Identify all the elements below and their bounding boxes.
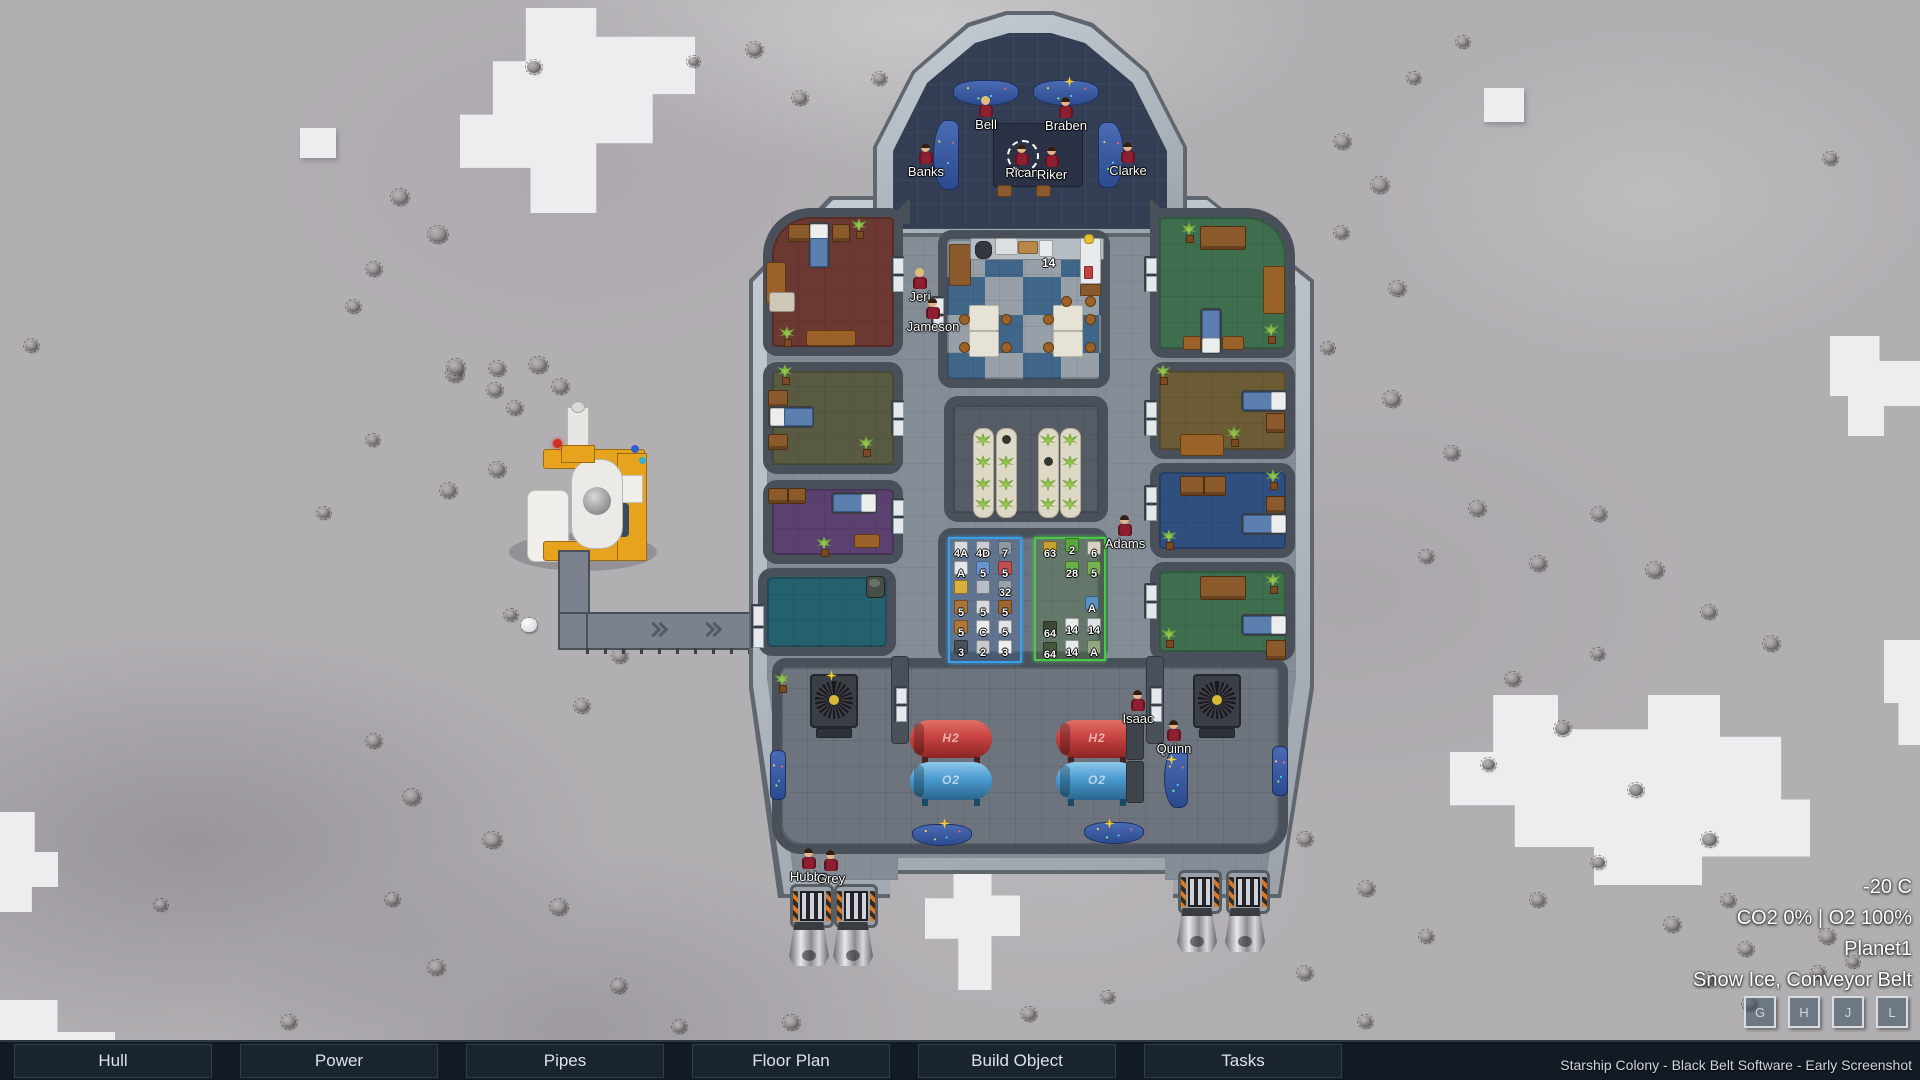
dining-table[interactable] (969, 331, 999, 357)
plant-pot (782, 377, 790, 385)
rig-tower-base (561, 445, 595, 463)
rock[interactable] (1372, 178, 1388, 192)
hotkey-j-button[interactable]: J (1832, 996, 1864, 1028)
snow-patch (300, 128, 336, 158)
plant-leaves-icon (858, 436, 874, 450)
dresser[interactable] (788, 488, 806, 504)
crew-hair (1061, 97, 1070, 102)
door-panel (893, 402, 904, 418)
plant[interactable] (1263, 323, 1279, 343)
crew-member-clarke[interactable]: Clarke (1120, 142, 1136, 164)
stored-item[interactable]: 64 (1040, 642, 1060, 662)
rock[interactable] (1702, 833, 1717, 846)
stored-item-count: 5 (980, 568, 986, 580)
furniture[interactable] (1084, 266, 1093, 279)
hull-button[interactable]: Hull (14, 1044, 212, 1078)
stored-item-count: A (1088, 603, 1096, 615)
console[interactable] (1084, 822, 1144, 844)
door[interactable] (891, 256, 904, 292)
stool[interactable] (1043, 314, 1054, 325)
dining-table[interactable] (1053, 305, 1083, 331)
furniture[interactable] (1084, 234, 1094, 244)
rig-box (621, 475, 643, 503)
rock[interactable] (429, 961, 444, 974)
stored-item[interactable]: 64 (1040, 621, 1060, 641)
furniture[interactable] (1199, 728, 1235, 738)
stool[interactable] (1061, 296, 1072, 307)
rock[interactable] (793, 92, 807, 104)
stored-item[interactable]: A (1084, 640, 1104, 660)
table[interactable] (1180, 434, 1224, 456)
tasks-button[interactable]: Tasks (1144, 1044, 1342, 1078)
rock[interactable] (404, 790, 420, 804)
console[interactable] (912, 824, 972, 846)
dresser[interactable] (1266, 496, 1285, 514)
stored-item[interactable]: 5 (951, 620, 971, 640)
stored-item[interactable]: 5 (995, 620, 1015, 640)
stored-item-count: A (957, 568, 965, 580)
rock[interactable] (1629, 784, 1643, 796)
table[interactable] (806, 330, 856, 346)
dresser[interactable] (1180, 476, 1204, 496)
plant-pot (821, 549, 829, 557)
build-object-button[interactable]: Build Object (918, 1044, 1116, 1078)
table[interactable] (854, 534, 880, 548)
stored-item[interactable]: 2 (973, 640, 993, 660)
plant[interactable] (777, 364, 793, 384)
crew-hair (915, 268, 924, 273)
crew-member-hubba[interactable]: Hubba (801, 848, 817, 870)
door[interactable] (1144, 583, 1157, 619)
stool[interactable] (959, 314, 970, 325)
rock[interactable] (1022, 1008, 1036, 1020)
rock[interactable] (1824, 153, 1837, 164)
stool[interactable] (1001, 342, 1012, 353)
rock[interactable] (367, 263, 381, 275)
stored-item-count: 5 (1002, 568, 1008, 580)
plant-leaves-icon (777, 364, 793, 378)
door-panel (893, 420, 904, 436)
plant-leaves-icon (816, 536, 832, 550)
door-panel (1146, 585, 1157, 601)
environment-hud: -20 C CO2 0% | O2 100% Planet1 Snow Ice,… (1693, 872, 1912, 996)
rock[interactable] (1764, 637, 1779, 650)
furniture[interactable] (1036, 185, 1051, 197)
stored-item-count: C (979, 627, 987, 639)
rock[interactable] (392, 190, 408, 204)
plant-leaves-icon (1263, 323, 1279, 337)
rock[interactable] (1531, 557, 1546, 570)
stored-item[interactable] (973, 580, 993, 600)
dresser[interactable] (1266, 640, 1286, 660)
dresser[interactable] (788, 224, 810, 242)
ventilation-fan[interactable] (810, 674, 858, 728)
furniture[interactable] (995, 238, 1018, 255)
crew-member-grey[interactable]: Grey (823, 850, 839, 872)
stored-item-count: 7 (1002, 548, 1008, 560)
bed[interactable] (1241, 614, 1287, 636)
door-panel (753, 628, 764, 648)
bed-blanket (1243, 616, 1272, 634)
stored-item[interactable] (951, 580, 971, 600)
door-panel (1146, 603, 1157, 619)
watermark-caption: Starship Colony - Black Belt Software - … (1560, 1057, 1912, 1073)
rock[interactable] (551, 900, 567, 914)
rig-blue-light (631, 445, 639, 453)
engine-housing[interactable] (1226, 870, 1270, 914)
crew-name-label: Rican (1005, 165, 1038, 180)
bed[interactable] (768, 406, 814, 428)
door[interactable] (891, 400, 904, 436)
rig-red-light (553, 439, 562, 448)
plant[interactable] (1265, 573, 1281, 593)
plant-pot (1270, 482, 1278, 490)
rock[interactable] (1359, 882, 1374, 895)
stored-item[interactable]: 4D (973, 541, 993, 561)
hotkey-h-button[interactable]: H (1788, 996, 1820, 1028)
plant[interactable] (1265, 469, 1281, 489)
bed-pillow (861, 494, 876, 512)
table[interactable] (1183, 336, 1201, 350)
trough-hole (1044, 457, 1053, 466)
plant-leaves-icon (1226, 426, 1242, 440)
door[interactable] (1144, 256, 1157, 292)
rock[interactable] (575, 700, 589, 712)
plant[interactable] (1181, 222, 1197, 242)
crew-hair (1123, 142, 1132, 147)
engine-nozzle (1177, 908, 1217, 952)
bed[interactable] (808, 222, 830, 268)
rock[interactable] (367, 735, 381, 747)
plant[interactable] (1226, 426, 1242, 446)
stored-item[interactable]: A (1082, 596, 1102, 616)
stored-item[interactable]: A (951, 561, 971, 581)
rock[interactable] (282, 1016, 296, 1028)
bed-blanket (784, 408, 813, 426)
rock[interactable] (784, 1016, 799, 1029)
console[interactable] (933, 120, 959, 190)
stored-item[interactable]: 3 (995, 640, 1015, 660)
engine-housing[interactable] (790, 884, 834, 928)
power-button[interactable]: Power (240, 1044, 438, 1078)
stored-item[interactable]: 5 (995, 600, 1015, 620)
plant-pot (1166, 542, 1174, 550)
crew-body (1121, 151, 1135, 163)
rock[interactable] (1702, 606, 1716, 618)
bed[interactable] (831, 492, 877, 514)
crew-name-label: Adams (1105, 536, 1145, 551)
crew-body (1059, 106, 1073, 118)
rock[interactable] (553, 380, 568, 393)
rock[interactable] (1384, 392, 1400, 406)
stored-item[interactable]: 3 (951, 640, 971, 660)
rock[interactable] (1482, 759, 1495, 770)
hydroponics-trough[interactable] (1060, 428, 1081, 518)
rock[interactable] (1445, 447, 1459, 459)
stored-item[interactable]: 14 (1084, 618, 1104, 638)
door[interactable] (894, 686, 907, 722)
rock[interactable] (1298, 833, 1312, 845)
table[interactable] (1263, 266, 1285, 314)
plant[interactable] (1161, 529, 1177, 549)
rock[interactable] (1298, 967, 1312, 979)
crew-member-jameson[interactable]: Jameson (925, 298, 941, 320)
door[interactable] (1144, 400, 1157, 436)
plant[interactable] (816, 536, 832, 556)
rock[interactable] (347, 301, 360, 312)
dresser[interactable] (768, 434, 788, 450)
stored-item[interactable]: 7 (995, 541, 1015, 561)
pipes-button[interactable]: Pipes (466, 1044, 664, 1078)
furniture[interactable] (997, 185, 1012, 197)
door-panel (893, 258, 904, 274)
plant-leaves-icon (1155, 364, 1171, 378)
furniture[interactable] (975, 241, 992, 259)
stored-item[interactable]: 63 (1040, 541, 1060, 561)
rock[interactable] (441, 484, 456, 497)
stool[interactable] (1043, 342, 1054, 353)
rock[interactable] (25, 340, 38, 351)
dresser[interactable] (1204, 476, 1226, 496)
crew-member-bell[interactable]: Bell (978, 96, 994, 118)
bed-blanket (810, 238, 828, 267)
stored-item[interactable]: 5 (1084, 561, 1104, 581)
rock[interactable] (673, 1021, 686, 1032)
crew-body (919, 152, 933, 164)
rock[interactable] (1390, 282, 1405, 295)
plant-pot (856, 231, 864, 239)
rock[interactable] (1531, 894, 1545, 906)
furniture[interactable] (949, 244, 971, 286)
stored-item[interactable]: 5 (973, 561, 993, 581)
crew-member-jeri[interactable]: Jeri (912, 268, 928, 290)
console[interactable] (770, 750, 786, 800)
rock[interactable] (1335, 135, 1350, 148)
rock[interactable] (1592, 857, 1605, 868)
stool[interactable] (1085, 342, 1096, 353)
barrel-top (869, 579, 880, 587)
stored-item-count: 5 (1002, 607, 1008, 619)
door[interactable] (1144, 485, 1157, 521)
door[interactable] (751, 604, 764, 648)
engine-housing[interactable] (1178, 870, 1222, 914)
rock[interactable] (873, 73, 886, 84)
rock[interactable] (490, 463, 505, 476)
crew-member-riker[interactable]: Riker (1044, 146, 1060, 168)
crew-member-banks[interactable]: Banks (918, 143, 934, 165)
door-panel (896, 706, 907, 722)
hotkey-l-button[interactable]: L (1876, 996, 1908, 1028)
stored-item[interactable]: 28 (1062, 561, 1082, 581)
crew-body (1045, 155, 1059, 167)
bed-pillow (810, 224, 828, 239)
stored-item-count: 63 (1044, 548, 1056, 560)
bed[interactable] (1241, 513, 1287, 535)
crew-body (802, 857, 816, 869)
plant[interactable] (779, 326, 795, 346)
engine-housing[interactable] (834, 884, 878, 928)
stored-item-icon (976, 580, 990, 594)
stored-item[interactable]: 32 (995, 580, 1015, 600)
rock[interactable] (1420, 931, 1433, 942)
crew-hair (1017, 144, 1026, 149)
plant-leaves-icon (1161, 627, 1177, 641)
rock[interactable] (1470, 502, 1485, 515)
trough-plant (975, 477, 991, 491)
crew-name-label: Banks (908, 164, 944, 179)
stored-item-count: 14 (1066, 647, 1078, 659)
stored-item-count: 64 (1044, 628, 1056, 640)
mining-rig[interactable] (515, 405, 650, 565)
stored-item-count: 64 (1044, 649, 1056, 661)
stored-item-count: 5 (980, 607, 986, 619)
trough-hole (1002, 435, 1011, 444)
plant[interactable] (851, 218, 867, 238)
rock[interactable] (1335, 227, 1348, 238)
plant[interactable] (774, 672, 790, 692)
door-panel (753, 606, 764, 626)
stored-item-count: 2 (1069, 545, 1075, 557)
rock[interactable] (1592, 508, 1606, 520)
rock[interactable] (1506, 673, 1520, 685)
stored-item-count: 28 (1066, 568, 1078, 580)
rock[interactable] (1647, 563, 1663, 577)
furniture[interactable] (1126, 761, 1144, 803)
stored-item[interactable]: 2 (1062, 538, 1082, 558)
crew-name-label: Clarke (1109, 163, 1147, 178)
bed[interactable] (1241, 390, 1287, 412)
crew-member-braben[interactable]: Braben (1058, 97, 1074, 119)
crew-name-label: Bell (975, 117, 997, 132)
floor-plan-button[interactable]: Floor Plan (692, 1044, 890, 1078)
dresser[interactable] (1266, 413, 1285, 433)
hydroponics-trough[interactable] (1038, 428, 1059, 518)
stored-item[interactable]: 14 (1062, 618, 1082, 638)
stool[interactable] (1085, 314, 1096, 325)
stored-item-count: 5 (958, 627, 964, 639)
stored-item[interactable]: 6 (1084, 541, 1104, 561)
door[interactable] (891, 498, 904, 534)
plant-pot (779, 685, 787, 693)
hotkey-g-button[interactable]: G (1744, 996, 1776, 1028)
stool[interactable] (1085, 296, 1096, 307)
gas-tank-H2[interactable]: H2 (910, 720, 992, 758)
dresser[interactable] (1200, 226, 1246, 250)
crew-member-adams[interactable]: Adams (1117, 515, 1133, 537)
plant[interactable] (1155, 364, 1171, 384)
console[interactable] (1272, 746, 1288, 796)
hydroponics-trough[interactable] (996, 428, 1017, 518)
crew-hair (1047, 146, 1056, 151)
rock[interactable] (747, 43, 762, 56)
crew-body (824, 859, 838, 871)
rock[interactable] (1420, 551, 1433, 562)
stored-item[interactable]: 14 (1062, 640, 1082, 660)
stored-item[interactable]: 4A (951, 541, 971, 561)
door-panel (896, 688, 907, 704)
door-panel (893, 518, 904, 534)
barrel[interactable] (866, 576, 885, 598)
dining-table[interactable] (969, 305, 999, 331)
room-hydroponics[interactable] (944, 396, 1108, 522)
crew-member-isaac[interactable]: Isaac (1130, 690, 1146, 712)
trough-plant (998, 455, 1014, 469)
furniture[interactable] (1080, 284, 1101, 296)
door-panel (1146, 487, 1157, 503)
tank-label: H2 (910, 731, 992, 745)
stored-item-count: 6 (1091, 548, 1097, 560)
dresser[interactable] (1200, 576, 1246, 600)
plant[interactable] (858, 436, 874, 456)
crew-name-label: Quinn (1157, 741, 1192, 756)
console[interactable] (1164, 748, 1188, 808)
hydroponics-trough[interactable] (973, 428, 994, 518)
door-panel (1151, 688, 1162, 704)
stored-item[interactable]: 5 (995, 561, 1015, 581)
plant-leaves-icon (1265, 573, 1281, 587)
rock[interactable] (488, 384, 502, 396)
stored-item[interactable]: C (973, 620, 993, 640)
crew-member-rican[interactable]: Rican (1014, 144, 1030, 166)
bed-blanket (1243, 515, 1272, 533)
gas-tank-O2[interactable]: O2 (910, 762, 992, 800)
rock[interactable] (1665, 918, 1680, 931)
trough-plant (998, 497, 1014, 511)
furniture[interactable] (1039, 240, 1053, 257)
plant[interactable] (1161, 627, 1177, 647)
rock[interactable] (490, 362, 505, 375)
rock[interactable] (386, 894, 399, 905)
rock[interactable] (1555, 722, 1570, 735)
game-viewport: 14H2H2O2O24A4D7A55325555C53236326285A641… (0, 0, 1920, 1080)
stored-item-count: 5 (958, 607, 964, 619)
stored-item[interactable]: 5 (951, 600, 971, 620)
stool[interactable] (1001, 314, 1012, 325)
plant-pot (863, 449, 871, 457)
ice-chunk[interactable] (521, 618, 537, 632)
trough-plant (1062, 433, 1078, 447)
crew-hair (804, 848, 813, 853)
rock[interactable] (612, 980, 626, 992)
stool[interactable] (959, 342, 970, 353)
rock[interactable] (1359, 1016, 1372, 1027)
stored-item[interactable]: 5 (973, 600, 993, 620)
trough-plant (975, 433, 991, 447)
furniture[interactable] (769, 292, 795, 312)
dining-table[interactable] (1053, 331, 1083, 357)
trough-plant (1062, 455, 1078, 469)
stored-item-count: 3 (958, 647, 964, 659)
furniture[interactable] (1018, 241, 1038, 254)
crew-member-quinn[interactable]: Quinn (1166, 720, 1182, 742)
furniture[interactable] (816, 728, 852, 738)
bed[interactable] (1200, 308, 1222, 354)
engine-nozzle (1225, 908, 1265, 952)
rock[interactable] (448, 360, 464, 374)
dresser[interactable] (832, 224, 850, 242)
crew-body (979, 105, 993, 117)
crew-hair (928, 298, 937, 303)
stored-item-count: 5 (1002, 627, 1008, 639)
plant-leaves-icon (1265, 469, 1281, 483)
rock[interactable] (527, 61, 541, 73)
ventilation-fan[interactable] (1193, 674, 1241, 728)
crew-hair (1133, 690, 1142, 695)
crew-name-label: Jameson (907, 319, 960, 334)
plant-leaves-icon (851, 218, 867, 232)
dresser[interactable] (768, 488, 788, 504)
table[interactable] (1222, 336, 1244, 350)
